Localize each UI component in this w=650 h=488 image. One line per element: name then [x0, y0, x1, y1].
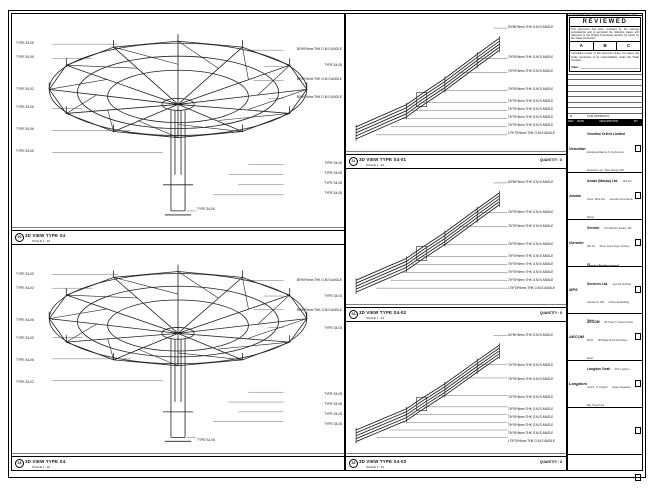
callout-label: TYPE S4-04 [324, 295, 342, 298]
consultant-logo: Gensler [569, 240, 587, 245]
view-title-bar: 21 3D VIEW TYPE S4-01 SCALE 1 : 10 QUANT… [346, 154, 566, 168]
reviewed-stamp-title: REVIEWED [570, 18, 640, 27]
callout-label: 76*76*6mm THK G.M.S ANGLE [508, 116, 564, 119]
callout-label: 76*76*6mm THK G.M.S ANGLE [508, 211, 564, 214]
callout-label: 50*50*5mm THK G.M.S ANGLE [508, 334, 564, 337]
callout-label: TYPE S4-05 [324, 413, 342, 416]
callout-label: TYPE S4-06 [324, 162, 342, 165]
callout-label: 50*50*5mm THK G.M.S ANGLE [297, 78, 342, 81]
consultant-logo: AECOM [569, 334, 587, 339]
view-title-bar: 24 3D VIEW TYPE S4-02 SCALE 1 : 10 QUANT… [346, 307, 566, 321]
callout-label: TYPE S4-05 [16, 56, 34, 59]
consultant-info: Venetian Orient Limited Estrada da Baia … [587, 122, 634, 176]
view-title: 3D VIEW TYPE S4-01 [359, 157, 406, 162]
callout-label: TYPE S4-06 [197, 208, 215, 211]
callout-label: TYPE S4-06 [324, 403, 342, 406]
view-title-bar: 26 3D VIEW TYPE S4-03 SCALE 1 : 10 QUANT… [346, 456, 566, 470]
callout-label: 76*76*6mm THK G.M.S ANGLE [508, 255, 564, 258]
consultant-row [568, 454, 642, 488]
consultant-name: Gensler [587, 226, 600, 230]
status-b: B [594, 42, 618, 50]
dome-structure-drawing [12, 14, 344, 231]
status-c: C [617, 42, 640, 50]
callout-label: L75*75*6mm THK G.M.S ANGLE [508, 132, 564, 135]
reviewed-stamp-text: This document has been reviewed by the r… [570, 27, 640, 41]
callout-label: 76*76*6mm THK G.M.S ANGLE [508, 416, 564, 419]
consultant-logo: Aedas [569, 193, 587, 198]
callout-label: 76*76*6mm THK G.M.S ANGLE [508, 70, 564, 73]
view-scale: SCALE 1 : 10 [32, 239, 50, 243]
callout-label: TYPE S4-02 [16, 381, 34, 384]
callout-label: TYPE S4-06 [324, 423, 342, 426]
consultant-info: Aedas (Macau) Ltd. 20/F AIA Tower, 251A-… [587, 169, 634, 223]
consultant-row: Venetian Venetian Orient Limited Estrada… [568, 125, 642, 172]
callout-label: 50*50*5mm THK G.M.S ANGLE [508, 181, 564, 184]
view-number-badge: 21 [349, 157, 358, 166]
consultant-list: Venetian Venetian Orient Limited Estrada… [568, 125, 642, 488]
callout-label: TYPE S4-06 [16, 319, 34, 322]
view-number-badge: 23 [15, 459, 24, 468]
callout-label: 76*76*6mm THK G.M.S ANGLE [508, 432, 564, 435]
status-checkbox [635, 145, 642, 152]
consultant-name: Venetian Orient Limited [587, 132, 625, 136]
consultant-row: Aedas Aedas (Macau) Ltd. 20/F AIA Tower,… [568, 172, 642, 219]
callout-label: TYPE S4-05 [16, 150, 34, 153]
callout-label: L75*75*6mm THK G.M.S ANGLE [508, 287, 564, 290]
consultant-row [568, 407, 642, 454]
callout-label: TYPE S4-05 [324, 192, 342, 195]
callout-label: 76*76*6mm THK G.M.S ANGLE [508, 108, 564, 111]
consultant-name: Aedas (Macau) Ltd. [587, 179, 618, 183]
callout-label: 76*76*6mm THK G.M.S ANGLE [508, 88, 564, 91]
callout-label: 50*50*5mm THK G.M.S ANGLE [297, 48, 342, 51]
callout-label: TYPE S4-05 [197, 439, 215, 442]
truss-structure-drawing [346, 322, 566, 457]
callout-label: 76*76*6mm THK G.M.S ANGLE [508, 271, 564, 274]
status-checkbox [635, 474, 642, 481]
callout-label: 76*76*6mm THK G.M.S ANGLE [508, 364, 564, 367]
status-checkbox [635, 380, 642, 387]
view-panel-left-top: TYPE S4-05TYPE S4-05TYPE S4-02TYPE S4-06… [11, 13, 345, 245]
callout-label: 50*50*5mm THK G.M.S ANGLE [297, 279, 342, 282]
callout-label: TYPE S4-05 [324, 64, 342, 67]
callout-label: TYPE S4-06 [16, 359, 34, 362]
view-panel-middle-3: 50*50*5mm THK G.M.S ANGLE76*76*6mm THK G… [345, 321, 567, 471]
view-panel-left-bottom: TYPE S4-05TYPE S4-02TYPE S4-06TYPE S4-05… [11, 244, 345, 471]
view-title-bar: 20 3D VIEW TYPE S4 SCALE 1 : 10 [12, 230, 344, 244]
callout-label: 76*76*6mm THK G.M.S ANGLE [508, 263, 564, 266]
view-title: 3D VIEW TYPE S4-03 [359, 459, 406, 464]
date-label: Date : [572, 65, 580, 69]
callout-label: TYPE S4-05 [16, 337, 34, 340]
consultant-logo: LangdonSeah [569, 381, 587, 386]
revision-table: A FOR APPROVAL REV DATE DESCRIPTION BY [568, 74, 642, 125]
consultant-row: MPS Macau Professional Services Ltd. Ave… [568, 266, 642, 313]
view-scale: SCALE 1 : 10 [366, 163, 384, 167]
view-number-badge: 26 [349, 459, 358, 468]
consultant-info: AECOM 8/F Tower 2, Grand Central Plaza 1… [587, 310, 634, 364]
callout-label: 76*76*6mm THK G.M.S ANGLE [508, 243, 564, 246]
quantity-label: QUANTITY : 8 [540, 311, 562, 315]
callout-label: TYPE S4-05 [324, 393, 342, 396]
view-title: 3D VIEW TYPE S4-02 [359, 310, 406, 315]
view-title: 3D VIEW TYPE S4 [25, 459, 65, 464]
drawing-sheet-viewport: TYPE S4-05TYPE S4-05TYPE S4-02TYPE S4-06… [0, 0, 650, 488]
callout-label: TYPE S4-02 [16, 287, 34, 290]
consultant-row: AECOM AECOM 8/F Tower 2, Grand Central P… [568, 313, 642, 360]
drawing-sheet: TYPE S4-05TYPE S4-05TYPE S4-02TYPE S4-06… [8, 10, 646, 478]
view-scale: SCALE 1 : 10 [32, 465, 50, 469]
quantity-label: QUANTITY : 8 [540, 158, 562, 162]
status-checkbox [635, 239, 642, 246]
view-number-badge: 24 [349, 310, 358, 319]
consultant-name: Langdon Seah [587, 367, 610, 371]
consultant-logo: MPS [569, 287, 587, 292]
callout-label: 50*50*5mm THK G.M.S ANGLE [297, 309, 342, 312]
review-status-row: A B C [570, 41, 640, 51]
consultant-name: AECOM [587, 320, 600, 324]
consultant-info: Langdon Seah 21/F Leighton Centre, 77 Le… [587, 357, 634, 411]
view-number-badge: 20 [15, 233, 24, 242]
callout-label: 76*76*6mm THK G.M.S ANGLE [508, 225, 564, 228]
callout-label: 76*76*6mm THK G.M.S ANGLE [508, 424, 564, 427]
view-title: 3D VIEW TYPE S4 [25, 233, 65, 238]
reviewed-stamp-text-2: Consultant review of this document does … [570, 51, 640, 62]
callout-label: TYPE S4-06 [16, 106, 34, 109]
consultant-row: LangdonSeah Langdon Seah 21/F Leighton C… [568, 360, 642, 407]
reviewed-stamp: REVIEWED This document has been reviewed… [569, 17, 641, 72]
callout-label: L75*75*6mm THK G.M.S ANGLE [508, 440, 564, 443]
callout-label: TYPE S4-05 [16, 273, 34, 276]
callout-label: TYPE S4-06 [324, 182, 342, 185]
status-checkbox [635, 286, 642, 293]
status-checkbox [635, 192, 642, 199]
callout-label: 76*76*6mm THK G.M.S ANGLE [508, 56, 564, 59]
callout-label: TYPE S4-05 [324, 172, 342, 175]
quantity-label: QUANTITY : 8 [540, 460, 562, 464]
callout-label: TYPE S4-06 [16, 128, 34, 131]
view-scale: SCALE 1 : 10 [366, 316, 384, 320]
callout-label: 76*76*6mm THK G.M.S ANGLE [508, 279, 564, 282]
sheet-note: IF IN DOUBT ASK. DO NOT SCALE THIS DRAWI… [568, 14, 642, 16]
callout-label: TYPE S4-03 [324, 327, 342, 330]
status-checkbox [635, 427, 642, 434]
title-block: IF IN DOUBT ASK. DO NOT SCALE THIS DRAWI… [567, 13, 643, 471]
view-scale: SCALE 1 : 10 [366, 465, 384, 469]
callout-label: TYPE S4-05 [16, 42, 34, 45]
view-panel-middle-2: 50*50*5mm THK G.M.S ANGLE76*76*6mm THK G… [345, 168, 567, 322]
callout-label: 76*76*6mm THK G.M.S ANGLE [508, 378, 564, 381]
status-checkbox [635, 333, 642, 340]
consultant-logo: Venetian [569, 146, 587, 151]
date-blank-line [581, 64, 638, 69]
view-title-bar: 23 3D VIEW TYPE S4 SCALE 1 : 10 [12, 456, 344, 470]
consultant-address-line: Estrada da Baia de N. Senhora da [587, 151, 623, 154]
callout-label: 50*50*5mm THK G.M.S ANGLE [508, 26, 564, 29]
view-panel-middle-1: 50*50*5mm THK G.M.S ANGLE76*76*6mm THK G… [345, 13, 567, 169]
status-a: A [570, 42, 594, 50]
callout-label: 76*76*6mm THK G.M.S ANGLE [508, 124, 564, 127]
callout-label: 76*76*6mm THK G.M.S ANGLE [508, 100, 564, 103]
review-date-row: Date : [570, 63, 640, 71]
callout-label: 50*50*5mm THK G.M.S ANGLE [297, 96, 342, 99]
callout-label: TYPE S4-02 [16, 88, 34, 91]
dome-structure-drawing [12, 245, 344, 457]
callout-label: 76*76*6mm THK G.M.S ANGLE [508, 396, 564, 399]
callout-label: 76*76*6mm THK G.M.S ANGLE [508, 408, 564, 411]
